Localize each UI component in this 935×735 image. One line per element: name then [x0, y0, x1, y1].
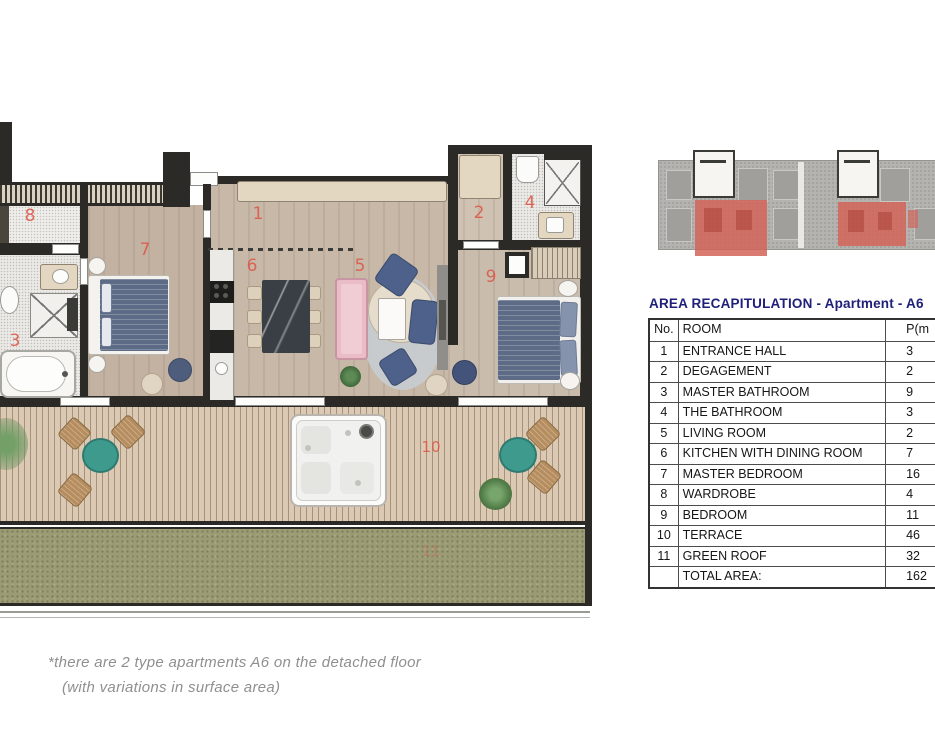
- bathroom-door-left: [80, 258, 88, 285]
- pouf-knitted: [452, 360, 477, 385]
- label-room-11: 11: [422, 544, 440, 560]
- cell-no: 10: [650, 526, 678, 546]
- terrace-edge-line: [0, 521, 592, 525]
- nightstand-bed9-1: [558, 280, 578, 297]
- shaft-box-inner: [509, 256, 525, 274]
- table-row: 2 DEGAGEMENT 2: [650, 361, 935, 382]
- jacuzzi-jet-2: [345, 430, 351, 436]
- cell-room: LIVING ROOM: [678, 424, 885, 444]
- wall-hall-degagement: [448, 145, 458, 345]
- dining-table: [262, 280, 310, 353]
- cell-p: 32: [885, 547, 935, 567]
- nightstand-bed9-2: [560, 372, 580, 390]
- cell-room: MASTER BEDROOM: [678, 465, 885, 485]
- cell-room: THE BATHROOM: [678, 403, 885, 423]
- key-plan-room-6: [880, 168, 910, 202]
- key-plan-core-2: [837, 150, 879, 198]
- tv-screen: [439, 300, 446, 340]
- cooktop-burner-3: [214, 293, 219, 298]
- sofa-pink-seat: [341, 284, 362, 354]
- table-row: 9 BEDROOM 11: [650, 505, 935, 526]
- cell-p: 11: [885, 506, 935, 526]
- cell-no: 5: [650, 424, 678, 444]
- table-row: 5 LIVING ROOM 2: [650, 423, 935, 444]
- label-room-5: 5: [355, 256, 366, 276]
- nightstand-1: [88, 257, 106, 275]
- armchair-right: [408, 299, 439, 346]
- footnote-line-2: (with variations in surface area): [48, 675, 421, 700]
- dining-chair-l2: [247, 310, 262, 324]
- bathtub-inner: [6, 356, 66, 392]
- label-room-9: 9: [486, 267, 497, 287]
- terrace-door-3: [458, 397, 548, 406]
- jacuzzi-jet-1: [305, 445, 311, 451]
- cell-room: KITCHEN WITH DINING ROOM: [678, 444, 885, 464]
- wall-right-terrace: [585, 406, 592, 606]
- basin-bath4: [546, 217, 564, 233]
- cell-p: 16: [885, 465, 935, 485]
- jacuzzi-seat-2: [301, 462, 331, 494]
- cell-no: [650, 567, 678, 587]
- key-plan-core-1-wall: [700, 160, 726, 163]
- wardrobe-floor: [0, 206, 80, 243]
- bedroom-door: [463, 241, 499, 249]
- shower-column-master: [67, 298, 78, 331]
- cell-no: 2: [650, 362, 678, 382]
- terrace-rug-right: [499, 437, 537, 473]
- kitchen-sink: [215, 362, 228, 375]
- floor-plan-sheet: 1 2 3 4 5 6 7 8 9 10 11 AREA RECAPITULAT…: [0, 0, 935, 735]
- shower-bath4-glass: [546, 162, 579, 204]
- oven-icon: [210, 330, 234, 353]
- cell-room: ENTRANCE HALL: [678, 342, 885, 362]
- key-plan-highlight-right-detail: [848, 210, 864, 232]
- hall-closet: [237, 181, 447, 202]
- header-no: No.: [650, 320, 678, 341]
- table-row: 1 ENTRANCE HALL 3: [650, 341, 935, 362]
- cell-p: 46: [885, 526, 935, 546]
- key-plan-highlight-left-detail: [704, 208, 722, 232]
- shower-bath4-bar: [544, 152, 581, 160]
- stool-living: [425, 374, 448, 396]
- key-plan-highlight-right-detail2: [878, 212, 892, 230]
- cell-p: 3: [885, 403, 935, 423]
- header-p: P(m: [885, 320, 935, 341]
- floor-plan: 1 2 3 4 5 6 7 8 9 10 11: [0, 0, 610, 630]
- cell-room: DEGAGEMENT: [678, 362, 885, 382]
- wardrobe-door: [52, 244, 79, 254]
- cell-no: 6: [650, 444, 678, 464]
- cell-no: 4: [650, 403, 678, 423]
- cooktop-burner-4: [223, 293, 228, 298]
- cell-p: 2: [885, 424, 935, 444]
- master-bed-pillow-2: [101, 317, 112, 347]
- header-room: ROOM: [678, 320, 885, 341]
- table-row: 6 KITCHEN WITH DINING ROOM 7: [650, 443, 935, 464]
- kitchen-counter: [210, 250, 234, 400]
- cooktop-burner-2: [223, 284, 228, 289]
- key-plan-room-2: [666, 208, 692, 242]
- cell-no: 1: [650, 342, 678, 362]
- jacuzzi-jet-3: [355, 480, 361, 486]
- bedroom-pillow-1: [559, 302, 578, 338]
- total-label: TOTAL AREA:: [678, 567, 885, 587]
- footnote-line-1: *there are 2 type apartments A6 on the d…: [48, 650, 421, 675]
- cell-room: MASTER BATHROOM: [678, 383, 885, 403]
- total-value: 162: [885, 567, 935, 587]
- jacuzzi-control: [359, 424, 374, 439]
- key-plan: [658, 150, 935, 260]
- key-plan-wing-gap: [798, 162, 804, 248]
- cell-p: 3: [885, 342, 935, 362]
- basin-master: [52, 269, 69, 284]
- cell-room: GREEN ROOF: [678, 547, 885, 567]
- key-plan-highlight-small: [908, 210, 918, 228]
- wall-top-left-corner: [0, 122, 12, 184]
- label-room-2: 2: [474, 203, 485, 223]
- key-plan-room-4: [773, 170, 801, 200]
- terrace-rug-left: [82, 438, 119, 473]
- green-roof-strip: [0, 527, 590, 606]
- key-plan-core-2-wall: [844, 160, 870, 163]
- key-plan-room-1: [666, 170, 692, 200]
- label-room-1: 1: [253, 204, 264, 224]
- cell-no: 7: [650, 465, 678, 485]
- label-room-10: 10: [421, 438, 440, 456]
- entry-wall-block: [163, 152, 190, 207]
- stool-master: [141, 373, 163, 395]
- area-table: No. ROOM P(m 1 ENTRANCE HALL 3 2 DEGAGEM…: [648, 318, 935, 589]
- parapet-line-1: [0, 611, 590, 613]
- label-room-7: 7: [140, 240, 151, 260]
- cell-no: 11: [650, 547, 678, 567]
- key-plan-highlight-left-detail2: [736, 210, 752, 230]
- wall-right-outer: [580, 145, 592, 406]
- bathtub-faucet: [62, 371, 68, 377]
- table-header-row: No. ROOM P(m: [650, 320, 935, 341]
- cell-no: 9: [650, 506, 678, 526]
- coffee-table-tray: [378, 298, 406, 340]
- degagement-closet: [459, 155, 501, 199]
- nightstand-2: [88, 355, 106, 373]
- cell-no: 8: [650, 485, 678, 505]
- dining-chair-l1: [247, 286, 262, 300]
- table-total-row: TOTAL AREA: 162: [650, 566, 935, 587]
- table-row: 3 MASTER BATHROOM 9: [650, 382, 935, 403]
- cell-p: 4: [885, 485, 935, 505]
- cell-room: WARDROBE: [678, 485, 885, 505]
- cooktop-burner-1: [214, 284, 219, 289]
- key-plan-room-3: [738, 168, 768, 202]
- wall-degagement-bathroom: [503, 154, 512, 240]
- cell-room: TERRACE: [678, 526, 885, 546]
- cell-no: 3: [650, 383, 678, 403]
- wardrobe-shelf-strip: [0, 206, 9, 243]
- master-bed-pillow-1: [101, 283, 112, 313]
- bedroom-bed-duvet: [498, 300, 560, 380]
- key-plan-room-5: [773, 208, 801, 240]
- table-row: 7 MASTER BEDROOM 16: [650, 464, 935, 485]
- footnote: *there are 2 type apartments A6 on the d…: [48, 650, 421, 700]
- table-title: AREA RECAPITULATION - Apartment - A6: [649, 296, 935, 311]
- jacuzzi-seat-3: [340, 462, 374, 494]
- table-row: 8 WARDROBE 4: [650, 484, 935, 505]
- label-room-8: 8: [25, 206, 36, 226]
- terrace-door-1: [60, 397, 110, 406]
- cell-p: 7: [885, 444, 935, 464]
- table-row: 10 TERRACE 46: [650, 525, 935, 546]
- master-bedroom-door: [203, 210, 211, 238]
- label-room-3: 3: [10, 331, 21, 351]
- cell-p: 9: [885, 383, 935, 403]
- wall-wardrobe-bedroom: [80, 184, 88, 400]
- cell-room: BEDROOM: [678, 506, 885, 526]
- pouf-master: [168, 358, 192, 382]
- terrace-door-2: [235, 397, 325, 406]
- plant-living: [340, 366, 361, 387]
- dining-chair-l3: [247, 334, 262, 348]
- terrace-plant-right: [479, 478, 512, 510]
- label-room-4: 4: [525, 193, 536, 213]
- toilet-icon-bath4: [516, 156, 539, 183]
- parapet-line-2: [0, 617, 590, 618]
- table-row: 4 THE BATHROOM 3: [650, 402, 935, 423]
- bedroom-pillow-2: [559, 340, 578, 377]
- key-plan-core-1: [693, 150, 735, 198]
- label-room-6: 6: [247, 256, 258, 276]
- cell-p: 2: [885, 362, 935, 382]
- bedroom-wardrobe-hangers: [531, 247, 581, 279]
- toilet-icon-master: [0, 286, 19, 314]
- table-row: 11 GREEN ROOF 32: [650, 546, 935, 567]
